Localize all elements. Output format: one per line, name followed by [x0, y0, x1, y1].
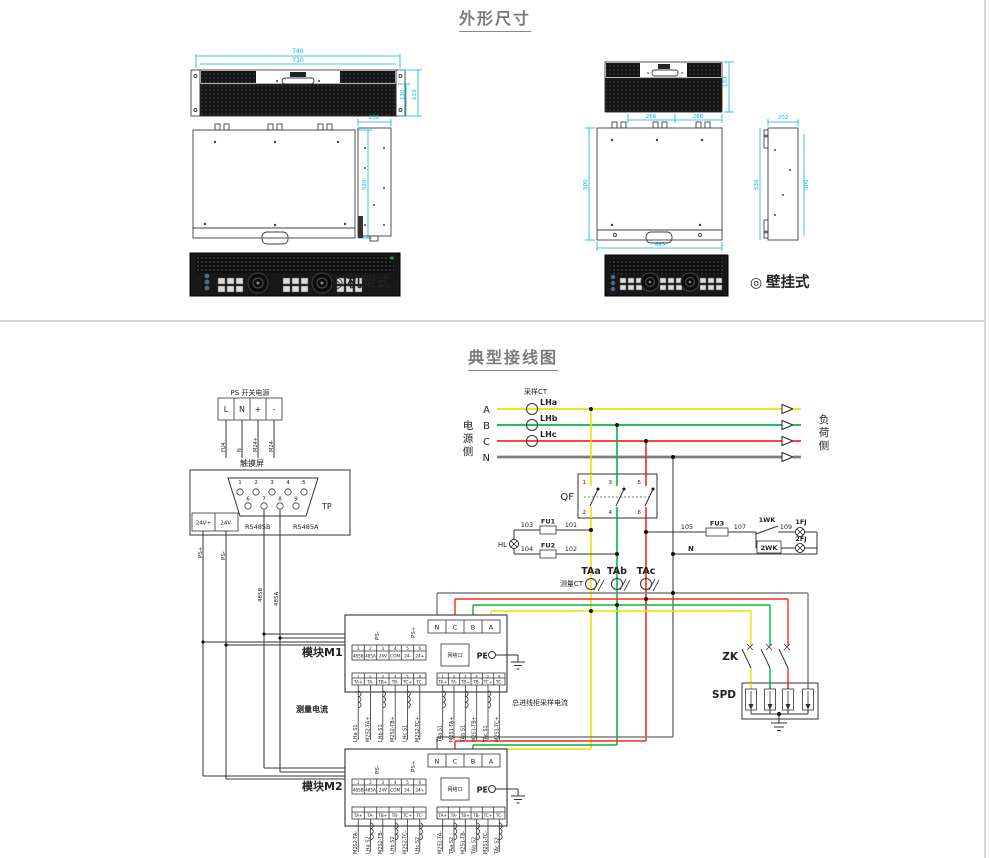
wire-label: M2S1-TC+ [494, 716, 500, 742]
rs485b-label: RS485B [245, 523, 271, 531]
ps-wire-label: N [237, 448, 243, 452]
relay-coil-icon [796, 544, 805, 553]
ct-term: TC- [495, 680, 503, 685]
term-label: B [471, 624, 475, 632]
strip-label: 485B [353, 788, 364, 793]
ps-plus-label: PS+ [411, 760, 417, 772]
strip-label: 485A [365, 654, 376, 659]
wire-label: 485A [274, 592, 280, 606]
ct-label: TAb [607, 566, 627, 577]
strip-num: 2 [369, 646, 372, 651]
strip-label: 485A [365, 788, 376, 793]
dim-label: 133 [723, 76, 729, 87]
wire-label: LHc S2 [415, 837, 421, 854]
wall-label: 壁挂式 [766, 273, 810, 291]
wire-label: PS- [221, 551, 227, 560]
ct-term: TA+ [437, 813, 447, 818]
ct-term: TB+ [460, 813, 470, 818]
phase-label: C [483, 437, 490, 448]
wire-label: TAa S2 [449, 837, 455, 855]
pin-number: 9 [294, 497, 298, 503]
wire-number: 104 [521, 545, 533, 553]
strip-num: 5 [406, 674, 408, 678]
wire-number: 107 [734, 523, 746, 531]
pin-number: 7 [262, 497, 266, 503]
ct-term: TC+ [483, 680, 493, 685]
wire-label: M2S2-TA- [353, 831, 359, 854]
strip-num: 2 [369, 780, 372, 785]
ct-term: TC+ [402, 680, 412, 685]
ct-label: TAc [637, 566, 656, 577]
pin-number: 3 [270, 480, 274, 486]
dim-label: 202 [778, 115, 789, 121]
wire-label: M2S1-TA+ [449, 717, 455, 742]
sampling-ct-label: 采样CT [524, 387, 548, 396]
hl-label: HL [498, 541, 507, 549]
wire-label: TAb S1 [460, 725, 466, 743]
strip-label: 24V [379, 654, 387, 659]
ct-term: TA+ [353, 680, 363, 685]
pin-number: 4 [286, 480, 290, 486]
phase-label: A [483, 405, 490, 416]
dim-label: 740 [292, 48, 304, 55]
ct-term: TA+ [437, 680, 447, 685]
caption-measure-current: 测量电流 [296, 704, 328, 714]
wire-label: TAc S2 [494, 837, 500, 855]
wire-label: LHa S1 [353, 724, 359, 742]
term-label: C [453, 758, 458, 766]
qf-contact: 1 [583, 480, 587, 486]
term-label: C [453, 624, 458, 632]
wire-number: 105 [681, 523, 693, 531]
ct-term: TB+ [377, 680, 387, 685]
wire-label: M2S1-TA- [438, 831, 444, 854]
strip-label: COM [390, 788, 400, 793]
strip-num: 6 [419, 780, 422, 785]
wire-label: M2S2-TB+ [390, 716, 396, 742]
ct-term: TB- [472, 680, 480, 685]
wire-label: LHc S1 [403, 725, 409, 742]
strip-num: 1 [442, 674, 444, 678]
wall-side-view: 202 530 500 [754, 115, 810, 240]
strip-num: 2 [369, 674, 371, 678]
term-label: N [435, 758, 440, 766]
wire-label: M2S1-TC- [483, 831, 489, 854]
ground-icon [511, 796, 525, 803]
strip-label: COM [390, 654, 400, 659]
wire-label: TAa S1 [438, 725, 444, 743]
ct-label: LHa [540, 398, 557, 407]
v24m-label: 24V- [220, 521, 232, 527]
ps-minus-label: PS- [375, 631, 381, 640]
ct-term: TB- [472, 813, 480, 818]
strip-num: 4 [394, 780, 397, 785]
ps-minus-label: PS- [375, 765, 381, 774]
ps-plus-label: PS+ [411, 626, 417, 638]
module-label: 模块M1 [302, 645, 343, 659]
rack-bullet-icon: ◎ [331, 275, 343, 291]
ct-term: TB+ [377, 813, 387, 818]
measure-cts: 测量CT TAa TAb TAc [560, 566, 659, 591]
wire-label: TAc S1 [483, 725, 489, 743]
dim-label: 266 [693, 114, 704, 120]
ps-wire-label: M24- [269, 439, 275, 452]
spd-label: SPD [712, 689, 736, 701]
wire-label: M2S2-TA+ [366, 717, 372, 742]
dim-label: 250 [369, 115, 380, 121]
touchscreen-title: 触摸屏 [240, 458, 264, 468]
ct-term: TC+ [402, 813, 412, 818]
strip-num: 3 [382, 646, 385, 651]
strip-num: 3 [464, 674, 466, 678]
fuse-label: FU3 [710, 520, 724, 528]
strip-num: 2 [453, 674, 455, 678]
load-arrow-icon [782, 405, 801, 462]
drawing-canvas: 740 710 130 133 520 250 ◎ 机架式 [0, 0, 990, 858]
wire-label: M2S2-TB- [378, 830, 384, 854]
net-port-label: 网络口 [447, 652, 462, 659]
pin-number: 6 [246, 497, 250, 503]
wire-label: LHa S2 [366, 836, 372, 854]
strip-num: 1 [357, 780, 360, 785]
ct-label: LHb [540, 414, 558, 423]
ct-term: TA- [450, 813, 458, 818]
module-label: 模块M2 [302, 779, 343, 793]
zk-label: ZK [722, 651, 739, 663]
qf-contact: 5 [638, 480, 642, 486]
zk-switch: ZK [722, 593, 808, 689]
dim-label: 130 [400, 89, 406, 100]
dim-label: 530 [754, 179, 760, 190]
v24p-label: 24V+ [196, 521, 212, 527]
ps-wire-label: M24+ [253, 437, 259, 452]
ps-terminal: L [224, 405, 229, 414]
pe-label: PE [477, 786, 488, 795]
pin-number: 8 [278, 497, 282, 503]
wire-label: LHb S2 [390, 836, 396, 854]
ct-label: LHc [540, 430, 557, 439]
pin-number: 2 [254, 480, 258, 486]
strip-label: 24+ [415, 654, 424, 659]
strip-num: 5 [406, 780, 409, 785]
ground-icon [771, 723, 787, 731]
wire-label: LHb S1 [378, 724, 384, 742]
load-side-label: 负 [819, 413, 830, 426]
wall-top-view: 500 665 [583, 122, 722, 251]
ct-term: TC- [495, 813, 503, 818]
strip-label: 24- [404, 654, 411, 659]
strip-num: 3 [382, 674, 384, 678]
wire-label: PS+ [198, 546, 204, 558]
strip-num: 4 [394, 646, 397, 651]
qf-label: QF [560, 492, 574, 503]
qf-contact: 2 [583, 510, 587, 516]
ps-wire-label: FU4 [221, 442, 227, 452]
strip-num: 1 [357, 674, 359, 678]
qf-breaker: QF 1 2 3 4 5 6 [560, 474, 657, 518]
db9-connector: 1 2 3 4 5 6 7 8 9 [237, 480, 307, 509]
rack-side-view: 250 [358, 115, 391, 241]
ps-terminal: N [239, 405, 245, 414]
m1-ct-wires: LHa S1 M2S2-TA+ LHb S1 M2S2-TB+ LHc S1 M… [353, 685, 500, 743]
caption-main-sampling: 总进线柜采样电流 [512, 698, 568, 707]
control-circuit: HL 103 FU1 101 104 FU2 102 105 FU3 107 1… [498, 516, 817, 558]
pin-number: 5 [302, 480, 306, 486]
ct-term: TB- [391, 813, 399, 818]
ct-term: TC+ [483, 813, 493, 818]
dim-label: 500 [804, 179, 810, 190]
dim-label: 133 [412, 89, 418, 100]
wire-number: 103 [521, 521, 533, 529]
strip-label: 24V [379, 788, 387, 793]
dim-label: 266 [646, 114, 657, 120]
strip-num: 5 [487, 674, 489, 678]
ct-term: TB+ [460, 680, 470, 685]
spd-arrester: SPD [712, 683, 818, 731]
qf-contact: 4 [609, 510, 613, 516]
strip-label: 24+ [415, 788, 424, 793]
dim-label: 665 [655, 242, 666, 248]
load-side-label: 侧 [819, 439, 830, 452]
ps-supply: PS 开关电源 L N + - FU4 N M24+ M24- [218, 388, 282, 458]
ps-terminal: - [273, 405, 276, 414]
rack-front-view: 740 710 130 133 [191, 48, 422, 116]
strip-label: 24- [404, 788, 411, 793]
source-side-label: 源 [463, 432, 474, 445]
neutral-label: N [688, 545, 694, 553]
ct-term: TA- [366, 680, 374, 685]
load-side-label: 荷 [819, 427, 830, 439]
hl-lamp-icon [510, 540, 519, 549]
manual-page: 外形尺寸 典型接线图 740 710 130 133 520 250 [0, 0, 990, 858]
fan-icon [641, 273, 659, 291]
rack-label: 机架式 [347, 273, 391, 291]
switch-label: 1WK [759, 516, 777, 524]
dim-label: 710 [292, 57, 304, 64]
wire-label: M2S2-TC- [403, 831, 409, 854]
tp-label: TP [321, 502, 332, 511]
pe-label: PE [477, 652, 488, 661]
wire-label: M2S1-TB- [460, 830, 466, 854]
wire-label: M2S1-TB+ [472, 716, 478, 742]
wall-bullet-icon: ◎ [750, 275, 762, 291]
ct-term: TB- [391, 680, 399, 685]
fuse-label: FU2 [541, 542, 555, 550]
fan-icon [681, 273, 699, 291]
fan-icon [248, 273, 268, 293]
qf-contact: 6 [638, 510, 642, 516]
switch-label: 2WK [761, 544, 779, 552]
ps-supply-title: PS 开关电源 [231, 388, 270, 397]
term-label: N [435, 624, 440, 632]
ct-term: TC- [415, 680, 423, 685]
net-port-label: 网络口 [447, 786, 462, 793]
wire-label: M2S2-TC+ [415, 716, 421, 742]
ct-term: TA- [450, 680, 458, 685]
strip-num: 1 [357, 646, 360, 651]
term-label: A [489, 624, 494, 632]
relay-label: 1FJ [795, 518, 806, 526]
wall-rear-view [605, 255, 728, 296]
ps-terminal: + [255, 405, 262, 414]
wall-front-view: 133 266 266 [605, 62, 734, 123]
phase-label: B [483, 421, 490, 432]
term-label: B [471, 758, 475, 766]
wire-label: 485B [258, 588, 264, 602]
strip-num: 5 [406, 646, 409, 651]
strip-num: 6 [419, 646, 422, 651]
dim-label: 520 [362, 179, 368, 190]
rs485a-label: RS485A [293, 523, 319, 531]
pin-number: 1 [238, 480, 242, 486]
strip-label: 485B [353, 654, 364, 659]
ct-term: TA+ [353, 813, 363, 818]
term-label: A [489, 758, 494, 766]
ct-label: TAa [581, 566, 601, 577]
wire-label: TAb S2 [472, 837, 478, 855]
ground-icon [511, 662, 525, 669]
ct-term: TC- [415, 813, 423, 818]
phase-label: N [483, 453, 490, 464]
wire-number: 102 [565, 545, 577, 553]
wire-number: 101 [565, 521, 577, 529]
fuse-label: FU1 [541, 518, 556, 526]
fan-icon [312, 273, 332, 293]
relay-label: 2FJ [795, 535, 806, 543]
module-m2: 模块M2 N C B A PS- PS+ 1 2 3 4 5 6 485B 48… [302, 749, 525, 855]
ct-term: TA- [366, 813, 374, 818]
measure-ct-label: 测量CT [560, 580, 584, 588]
source-side-label: 电 [463, 419, 474, 432]
strip-num: 3 [382, 780, 385, 785]
qf-contact: 3 [609, 480, 613, 486]
touchscreen-panel: 触摸屏 1 2 3 4 5 6 7 8 9 TP 24V+ 24V- RS485… [190, 458, 350, 535]
rack-top-view: 520 [193, 124, 372, 244]
wire-number: 109 [780, 523, 792, 531]
source-side-label: 侧 [463, 445, 474, 458]
dim-label: 500 [583, 179, 589, 190]
